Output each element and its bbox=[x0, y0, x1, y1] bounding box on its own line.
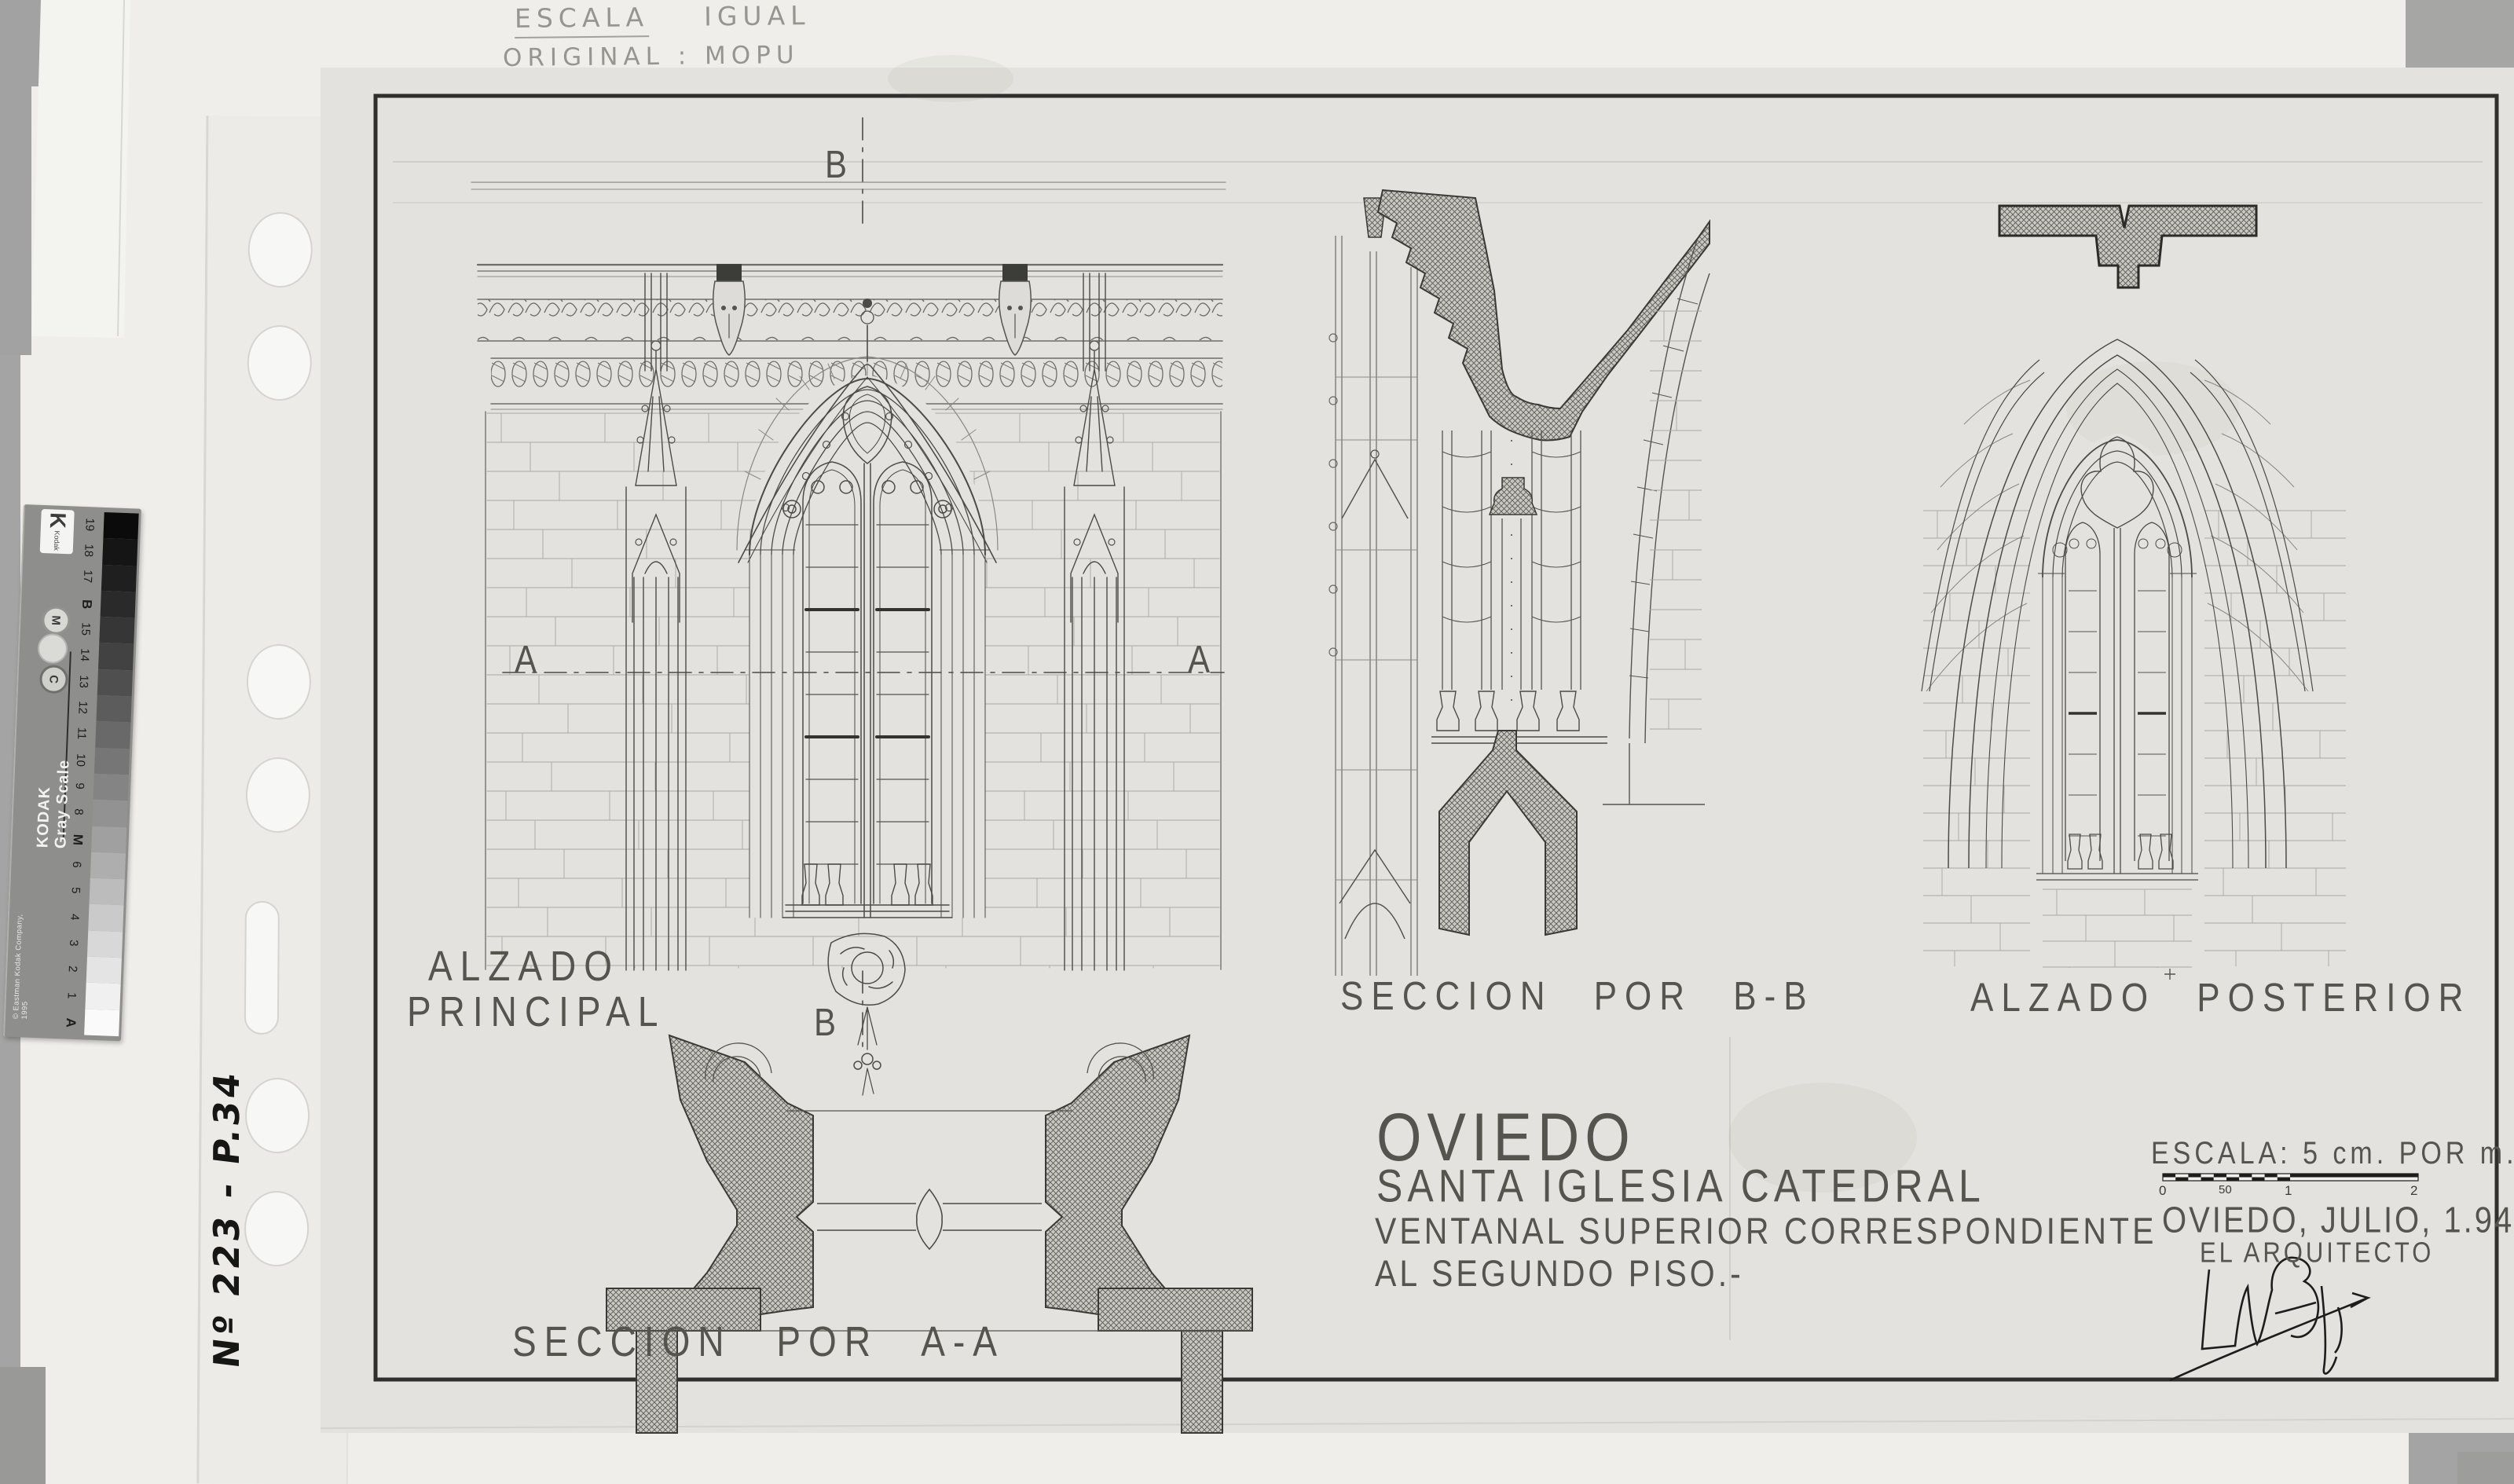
control-patch-blank bbox=[37, 633, 68, 664]
scale-step-label: 13 bbox=[76, 669, 90, 694]
scale-step-label: 8 bbox=[71, 800, 86, 824]
kodak-gray-scale-ruler: K Kodak 19 18 17 B 15 14 13 12 11 10 9 8… bbox=[3, 504, 141, 1041]
kodak-logo-icon: K Kodak bbox=[40, 509, 75, 555]
scale-step-label: B bbox=[79, 592, 95, 617]
scale-step-label: 1 bbox=[64, 984, 79, 1008]
control-patch-m: M bbox=[42, 606, 71, 635]
scale-bar-label-1: 1 bbox=[2285, 1183, 2292, 1199]
section-letter-a-right: A bbox=[1188, 638, 1218, 682]
scale-step-label: 4 bbox=[68, 905, 82, 929]
scale-step-label: M bbox=[69, 828, 86, 852]
scale-bar-label-0: 0 bbox=[2159, 1183, 2166, 1199]
label-seccion-aa: SECCION POR A-A bbox=[512, 1317, 1005, 1366]
scale-step-label: 12 bbox=[75, 695, 90, 720]
kodak-copyright-text: © Eastman Kodak Company, 1995 bbox=[12, 909, 33, 1020]
kodak-logo-letter: K bbox=[46, 512, 69, 529]
kodak-logo-text: Kodak bbox=[53, 530, 61, 551]
scale-step-label: 10 bbox=[73, 748, 87, 772]
section-letter-b-top: B bbox=[825, 143, 855, 187]
drawing-artwork bbox=[0, 0, 2514, 1484]
pencil-note-line1: ESCALAIGUAL bbox=[515, 0, 811, 34]
pencil-note-line2: ORIGINAL : MOPU bbox=[503, 41, 800, 72]
scale-step-label: 18 bbox=[82, 538, 96, 562]
scale-step-label: 11 bbox=[75, 721, 89, 746]
scale-step-label: 6 bbox=[69, 852, 83, 877]
scale-bar bbox=[2163, 1174, 2418, 1181]
sleeve-corner-strip bbox=[31, 0, 130, 338]
archive-number-marker: Nº 223 - P.34 bbox=[206, 1068, 247, 1371]
kodak-brand-text: KODAK Gray Scale bbox=[34, 753, 74, 849]
scale-bar-label-50: 50 bbox=[2219, 1183, 2232, 1196]
label-seccion-bb: SECCION POR B-B bbox=[1340, 974, 1815, 1020]
section-letter-b-bottom: B bbox=[814, 1001, 844, 1045]
label-alzado-principal-line2: PRINCIPAL bbox=[407, 987, 665, 1036]
label-alzado-posterior: ALZADO POSTERIOR bbox=[1970, 976, 2471, 1021]
scale-step-label: 14 bbox=[78, 643, 92, 667]
scale-step-label: 2 bbox=[65, 957, 79, 981]
architect-line: EL ARQUITECTO bbox=[2200, 1237, 2434, 1270]
scale-step-label: 3 bbox=[67, 931, 81, 955]
control-patch-c: C bbox=[39, 665, 68, 694]
label-alzado-principal-line1: ALZADO bbox=[428, 941, 620, 991]
scanned-photo: ESCALAIGUAL ORIGINAL : MOPU Nº 223 - P.3… bbox=[0, 0, 2514, 1484]
scale-step-label: A bbox=[62, 1010, 79, 1035]
scale-step-label: 15 bbox=[79, 617, 93, 641]
scale-text: ESCALA: 5 cm. POR m. bbox=[2151, 1136, 2514, 1171]
scale-bar-label-2: 2 bbox=[2410, 1183, 2417, 1199]
title-subject-line1: VENTANAL SUPERIOR CORRESPONDIENTE bbox=[1375, 1210, 2157, 1253]
title-subject-line2: AL SEGUNDO PISO.- bbox=[1375, 1252, 1744, 1295]
scale-step-label: 9 bbox=[72, 774, 86, 798]
pencil-note-word2: IGUAL bbox=[704, 0, 811, 31]
scale-step-label: 19 bbox=[82, 512, 97, 537]
scale-step-label: 5 bbox=[68, 878, 82, 903]
section-letter-a-left: A bbox=[515, 638, 544, 682]
title-building: SANTA IGLESIA CATEDRAL bbox=[1376, 1160, 1985, 1212]
pencil-note-word1: ESCALA bbox=[515, 2, 650, 38]
date-line: OVIEDO, JULIO, 1.944 bbox=[2162, 1200, 2514, 1241]
scale-step-label: 17 bbox=[80, 564, 94, 588]
